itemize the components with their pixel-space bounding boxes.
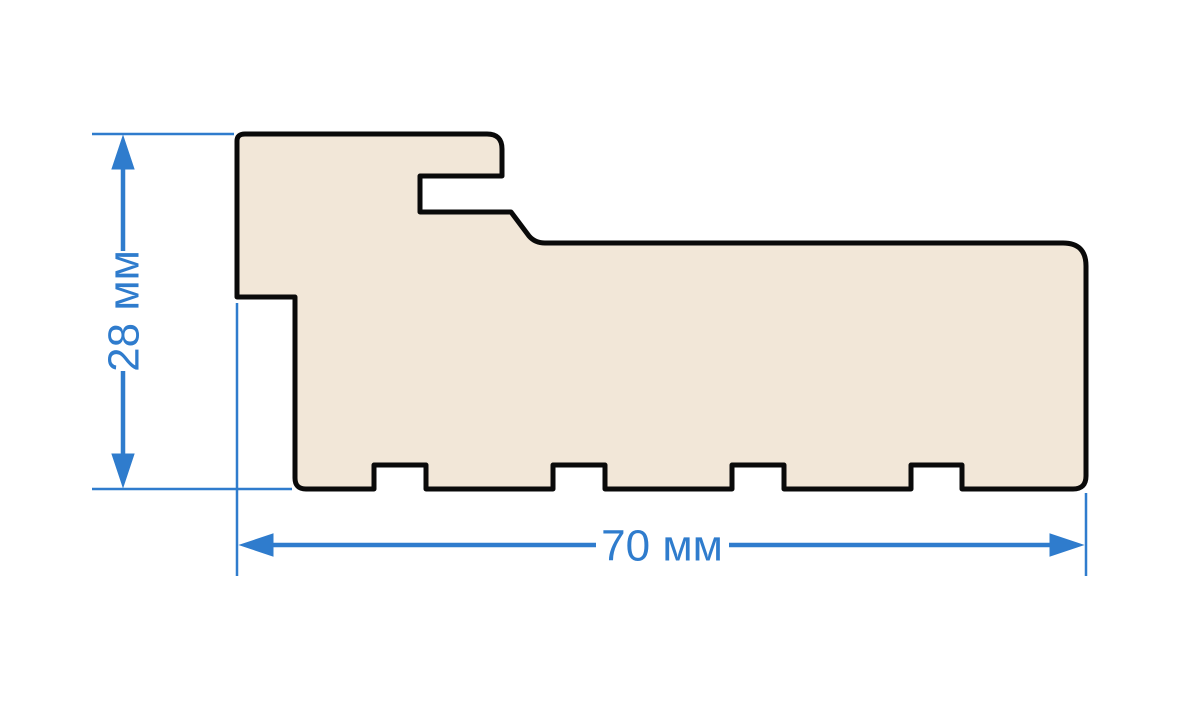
profile-diagram: 28 мм 70 мм [0,0,1184,712]
height-dimension-label: 28 мм [99,250,148,372]
width-dimension-label: 70 мм [601,521,723,570]
drawing-canvas: 28 мм 70 мм [0,0,1184,712]
